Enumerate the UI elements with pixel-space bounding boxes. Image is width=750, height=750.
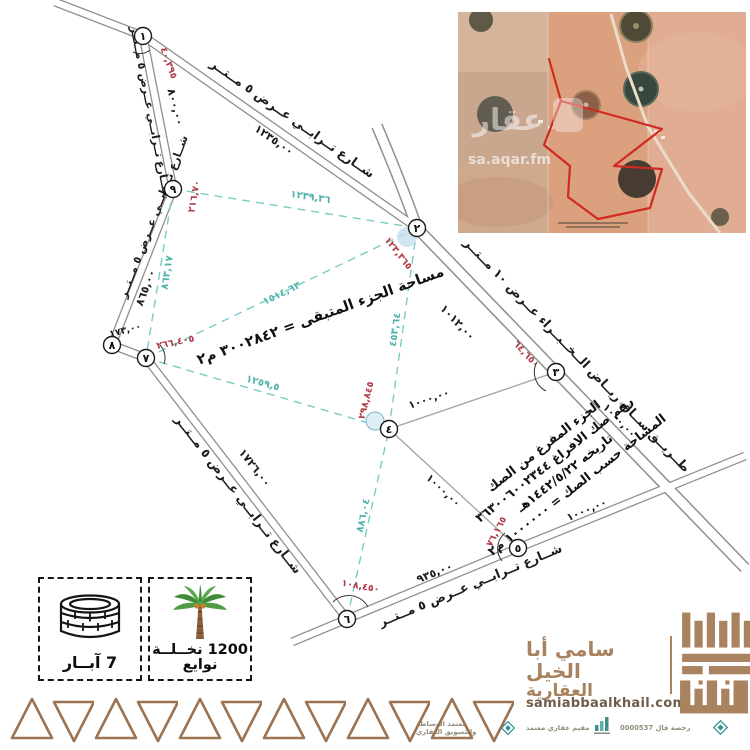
license-seal-icon: [712, 719, 729, 736]
vertex-3: ٣: [553, 366, 560, 379]
palms-label-line2: نوايع: [152, 658, 248, 673]
palms-label-line1: 1200 نخــلــة: [152, 643, 248, 658]
vertex-7: ٧: [143, 352, 150, 365]
wells-legend-box: 7 آبــار: [38, 577, 142, 681]
road-label-lower-left: شــارع تــرابــي عــرض ٥ مــتــر: [171, 411, 305, 576]
vertex-6: ٦: [344, 613, 351, 626]
branding-block: سامي أبا الخيل العقارية samiabbaalkhail.…: [520, 612, 750, 718]
cert-license-label: رخصة فال 0000537: [620, 724, 706, 732]
side-label-n: ١٠٠٠,٠٠: [407, 387, 451, 412]
aqar-watermark-domain: sa.aqar.fm: [468, 152, 551, 168]
vertex-9: ٩: [170, 183, 177, 196]
vertex-2: ٢: [414, 222, 421, 235]
appraiser-chart-icon: [594, 716, 610, 736]
well-icon: [54, 590, 126, 644]
cert-appraiser-label: مقيم عقاري معتمد: [526, 724, 592, 732]
kufic-logo: [678, 612, 750, 716]
triangle-border: [10, 696, 514, 744]
diag-v7-v2: ١٥١٤,٦٣: [261, 280, 302, 308]
vertex-8: ٨: [109, 339, 116, 352]
angle-v7: ٢٦٦,٤٠٥: [156, 333, 196, 352]
remaining-area-note: مساحة الجزء المتبقى = ٣٠٠٢٨٤٢ م٢: [195, 264, 446, 369]
wells-label: 7 آبــار: [63, 655, 117, 672]
brand-divider: [670, 636, 673, 694]
vertex-4: ٤: [386, 423, 393, 436]
road-length-main: ١٠١٢,٠٠: [437, 302, 477, 343]
road-label-top: شــارع تــرابــي عــرض ٥ مــتــر: [207, 55, 378, 181]
road-length-upper-left: ٨٠٠,٠٠: [165, 87, 187, 127]
company-name-line1: سامي أبا الخيل: [526, 638, 666, 682]
vertex-5: ٥: [515, 542, 522, 555]
diag-v6-v4: ٨٨٦,٠٤: [355, 498, 373, 534]
angle-v9: ٢١٦,٧٠: [186, 180, 202, 214]
palms-legend-box: 1200 نخــلــة نوايع: [148, 577, 252, 681]
diag-v7-v4: ١٢٥٩,٥: [245, 374, 281, 394]
palms-label: 1200 نخــلــة نوايع: [152, 643, 248, 673]
company-name: سامي أبا الخيل العقارية: [526, 638, 666, 701]
diagonal-labels: ١٢٣٩,٣٦ ١٥١٤,٦٣ ٤٥٣,٦٤ ١٢٥٩,٥ ٨٦٣,١٧ ٨٨٦…: [159, 189, 403, 533]
angle-v6: ١٠٨,٤٥٠: [341, 578, 381, 596]
satellite-image: عقار sa.aqar.fm: [458, 12, 746, 233]
diag-v9-v2: ١٢٣٩,٣٦: [290, 189, 332, 206]
palm-tree-icon: [170, 583, 230, 639]
land-listing-image: شــارع تــرابــي عــرض ٥ مــتــر ١٢٣٥,٠٠…: [0, 0, 750, 750]
company-website: samiabbaalkhail.com: [526, 696, 666, 711]
vertex-1: ١: [140, 30, 147, 43]
aqar-watermark-logo: عقار: [471, 103, 544, 138]
